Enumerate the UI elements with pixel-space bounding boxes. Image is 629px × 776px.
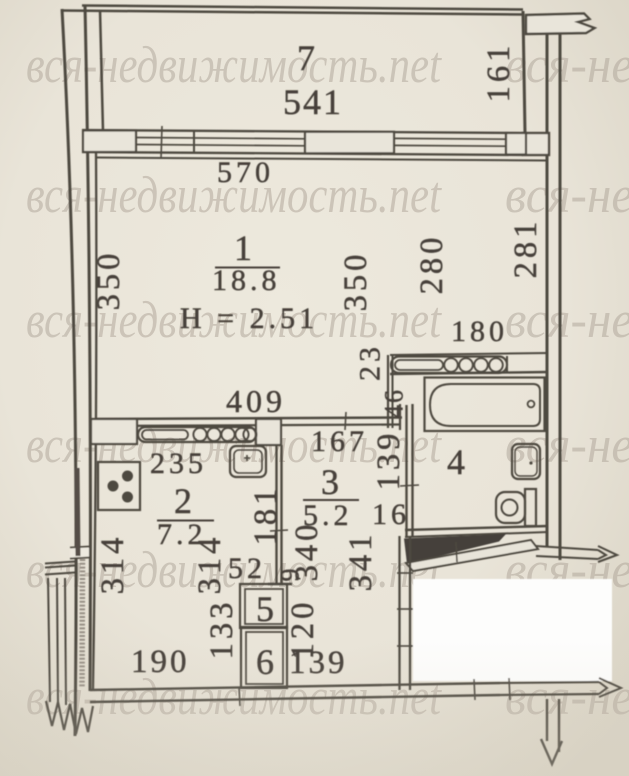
svg-text:181: 181 [248, 485, 284, 546]
svg-text:235: 235 [150, 447, 207, 480]
svg-text:280: 280 [414, 234, 450, 295]
svg-text:46: 46 [380, 388, 409, 418]
svg-text:4: 4 [447, 442, 467, 482]
svg-text:вся-недвижимость.net: вся-недвижимость.net [26, 37, 442, 94]
svg-text:9: 9 [276, 567, 305, 582]
svg-text:350: 350 [91, 250, 127, 311]
svg-text:281: 281 [508, 218, 544, 279]
svg-text:350: 350 [338, 251, 374, 312]
svg-text:314: 314 [95, 534, 131, 595]
svg-text:5: 5 [256, 589, 276, 629]
svg-text:167: 167 [311, 425, 368, 458]
svg-text:23: 23 [354, 343, 387, 381]
svg-text:541: 541 [283, 82, 343, 122]
svg-text:161: 161 [481, 42, 517, 103]
svg-text:341: 341 [343, 531, 379, 592]
svg-text:3: 3 [321, 462, 341, 502]
svg-text:вся-нед: вся-нед [505, 292, 629, 349]
svg-text:139: 139 [371, 430, 407, 491]
svg-text:16: 16 [372, 498, 410, 531]
svg-text:570: 570 [217, 156, 274, 189]
svg-text:314: 314 [192, 534, 228, 595]
svg-text:180: 180 [451, 315, 508, 348]
svg-text:2: 2 [174, 481, 194, 521]
svg-text:409: 409 [226, 383, 286, 419]
svg-text:H = 2.51: H = 2.51 [180, 302, 318, 335]
svg-text:7: 7 [297, 38, 317, 78]
svg-text:18.8: 18.8 [212, 264, 281, 297]
svg-text:1: 1 [234, 228, 254, 268]
svg-text:52: 52 [228, 552, 266, 585]
svg-text:вся-нед: вся-нед [505, 167, 629, 224]
